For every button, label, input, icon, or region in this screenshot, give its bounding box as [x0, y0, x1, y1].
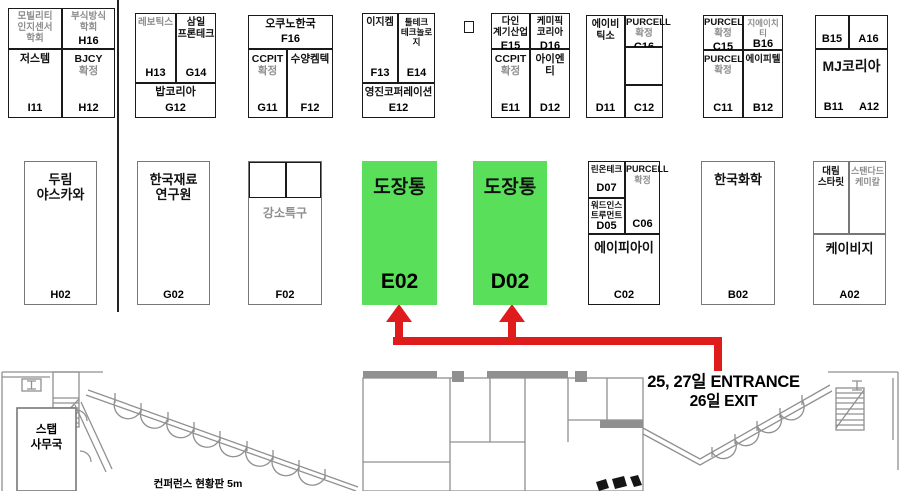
- booth-label: 케미픽: [531, 16, 569, 27]
- booth-kbg: 케이비지A02: [813, 234, 886, 305]
- booth-b02: 한국화학B02: [701, 161, 775, 305]
- booth-label: CCPIT: [249, 53, 286, 65]
- booth-g14: 삼일프론테크G14: [176, 13, 216, 83]
- booth-e12: 영진코퍼레이션E12: [362, 83, 435, 118]
- booth-code: C11: [713, 102, 733, 117]
- booth-code: D12: [540, 102, 560, 117]
- booth-label: 한국재료: [138, 172, 209, 187]
- booth-code: B15: [822, 33, 842, 48]
- booth-empty-mid: [625, 47, 663, 85]
- booth-label: 삼일: [177, 17, 215, 29]
- booth-label: 학회: [9, 33, 61, 44]
- booth-d11: 에이비틱소D11: [586, 15, 625, 118]
- route-arrow-entrance-stem: [714, 337, 722, 371]
- booth-code: A16: [858, 33, 878, 48]
- booth-code: C12: [634, 102, 654, 117]
- booth-standard-chemical: 스탠다드케미칼: [849, 161, 886, 234]
- booth-label: 코리아: [531, 27, 569, 38]
- booth-label: 저스템: [9, 53, 61, 66]
- booth-label: 확정: [704, 65, 742, 76]
- booth-h16: 부식방식학회H16: [62, 8, 115, 49]
- booth-c11: PURCELL확정C11: [703, 50, 743, 118]
- booth-label: 아이엔티: [531, 53, 569, 78]
- booth-h13: 레보틱스H13: [135, 13, 176, 83]
- booth-label: 다인: [492, 16, 529, 27]
- booth-label: 에이피텔: [744, 54, 782, 65]
- booth-label: PURCELL: [626, 17, 662, 28]
- booth-label: 연구원: [138, 187, 209, 202]
- booth-b15: B15: [815, 15, 849, 49]
- booth-label: 케미칼: [850, 177, 885, 188]
- booth-label: 스탠다드: [850, 166, 885, 177]
- booth-label: 강소특구: [249, 206, 321, 220]
- booth-e02-highlight: 도장통E02: [362, 161, 437, 305]
- booth-code: C06: [632, 218, 652, 233]
- booth-d16: 케미픽코리아D16: [530, 13, 570, 49]
- booth-code: E12: [389, 102, 409, 117]
- staff-office-line: 사무국: [17, 438, 76, 453]
- booth-label: 확정: [626, 28, 662, 39]
- booth-f02-subbox-2: [286, 162, 321, 198]
- booth-code: D11: [596, 102, 616, 117]
- booth-f13: 이지켐F13: [362, 13, 398, 83]
- booth-f12: 수양켐텍F12: [287, 49, 333, 118]
- booth-code: B12: [753, 102, 773, 117]
- booth-label: PURCELL: [704, 54, 742, 65]
- booth-label: 지에이치티: [744, 18, 782, 38]
- booth-mobility-sensor-society: 모빌리티인지센서학회: [8, 8, 62, 49]
- route-arrow-e02-head-icon: [386, 304, 412, 322]
- booth-label: 부식방식: [63, 11, 114, 22]
- booth-code: G12: [165, 102, 186, 117]
- booth-label: 도장통: [362, 177, 437, 199]
- booth-label: 확정: [492, 65, 529, 77]
- booth-label: 트루먼트: [589, 210, 624, 220]
- booth-api: 에이피아이C02: [588, 234, 660, 305]
- route-arrow-horizontal: [393, 337, 722, 345]
- booth-label: 에이피아이: [589, 240, 659, 255]
- booth-mj-korea: MJ코리아B11A12: [815, 49, 888, 118]
- booth-code: D05: [596, 220, 616, 235]
- booth-label: CCPIT: [492, 53, 529, 65]
- booth-label: 대림: [814, 166, 848, 177]
- booth-d07: 린온테크D07: [588, 161, 625, 198]
- booth-code: A02: [839, 289, 859, 304]
- booth-g02: 한국재료연구원G02: [137, 161, 210, 305]
- floorplan: 25, 27일 ENTRANCE 26일 EXIT 스탭 사무국 컨퍼런스 현황…: [0, 0, 900, 491]
- route-arrow-d02-shaft: [508, 319, 516, 341]
- booth-code: G02: [163, 289, 184, 304]
- booth-b16: 지에이치티B16: [743, 15, 783, 50]
- booth-code: B11: [824, 101, 844, 113]
- booth-f02-subbox-1: [249, 162, 286, 198]
- booth-c06: PURCELL확정C06: [625, 161, 660, 234]
- booth-code: F12: [301, 102, 320, 117]
- route-arrow-d02-head-icon: [499, 304, 525, 322]
- booth-g11: CCPIT확정G11: [248, 49, 287, 118]
- booth-g12: 밥코리아G12: [135, 83, 216, 118]
- booth-e11: CCPIT확정E11: [491, 49, 530, 118]
- entrance-exit-label: 25, 27일 ENTRANCE 26일 EXIT: [625, 373, 822, 411]
- booth-h02: 두림야스카와H02: [24, 161, 97, 305]
- booth-code: F13: [371, 67, 390, 82]
- booth-code: E14: [407, 67, 427, 82]
- booth-label: 틱소: [587, 31, 624, 43]
- booth-label: 프론테크: [177, 29, 215, 41]
- booth-code: F02: [276, 289, 295, 304]
- booth-label: 수양켐텍: [288, 53, 332, 65]
- booth-i11: 저스템I11: [8, 49, 62, 118]
- booth-label: 도장통: [473, 177, 547, 199]
- booth-code: H12: [78, 102, 98, 117]
- staff-office-line: 스탭: [17, 423, 76, 438]
- booth-label: 확정: [63, 65, 114, 77]
- exit-line: 26일 EXIT: [625, 393, 822, 412]
- booth-b12: 에이피텔B12: [743, 50, 783, 118]
- booth-h12: BJCY확정H12: [62, 49, 115, 118]
- booth-label: 모빌리티: [9, 11, 61, 22]
- booth-code: H02: [50, 289, 70, 304]
- booth-a16: A16: [849, 15, 888, 49]
- cutoff-text-fragment: [596, 475, 642, 491]
- booth-label: PURCELL: [704, 17, 742, 28]
- booth-label: 인지센서: [9, 22, 61, 33]
- conference-board-label: 컨퍼런스 현황판 5m: [136, 476, 260, 491]
- booth-code: H13: [145, 67, 165, 82]
- booth-code: G14: [186, 67, 207, 82]
- booth-code: E02: [381, 270, 418, 305]
- booth-code: G11: [257, 102, 277, 117]
- booth-code: C02: [614, 289, 634, 304]
- booth-label: 린온테크: [589, 164, 624, 174]
- booth-code: I11: [28, 102, 43, 117]
- booth-e15: 다인계기산업E15: [491, 13, 530, 49]
- booth-label: 계기산업: [492, 27, 529, 38]
- booth-code: D02: [491, 270, 530, 305]
- booth-code: A12: [859, 101, 879, 113]
- booth-label: 야스카와: [25, 187, 96, 202]
- booth-d05: 워드인스트루먼트D05: [588, 198, 625, 234]
- booth-label: 워드인스: [589, 200, 624, 210]
- booth-d02-highlight: 도장통D02: [473, 161, 547, 305]
- booth-d12: 아이엔티D12: [530, 49, 570, 118]
- booth-label: 스타릿: [814, 177, 848, 188]
- booth-code: H16: [78, 35, 98, 47]
- booth-label: 학회: [63, 22, 114, 33]
- booth-label: 영진코퍼레이션: [363, 86, 434, 98]
- booth-label: 에이비: [587, 19, 624, 31]
- booth-daelim-starlet: 대림스타릿: [813, 161, 849, 234]
- staff-office-label: 스탭 사무국: [17, 423, 76, 453]
- booth-code: E11: [501, 102, 520, 117]
- aisle-divider-line: [117, 0, 119, 312]
- booth-c12: C12: [625, 85, 663, 118]
- booth-label: 레보틱스: [136, 17, 175, 28]
- booth-label: 확정: [704, 28, 742, 39]
- booth-label: 오쿠노한국: [249, 18, 332, 31]
- booth-label: 케이비지: [814, 241, 885, 256]
- booth-label: 테크놀로지: [399, 27, 434, 47]
- booth-e14: 툴테크테크놀로지E14: [398, 13, 435, 83]
- booth-label: 두림: [25, 172, 96, 187]
- route-arrow-e02-shaft: [395, 319, 403, 341]
- booth-code: F16: [281, 33, 300, 48]
- small-booth-marker: [464, 21, 474, 33]
- booth-label: 확정: [249, 65, 286, 77]
- booth-c16: PURCELL확정C16: [625, 15, 663, 47]
- column-mark-icon: [27, 381, 36, 389]
- booth-f16: 오쿠노한국F16: [248, 15, 333, 49]
- booth-label: BJCY: [63, 53, 114, 65]
- booth-label: 툴테크: [399, 17, 434, 27]
- booth-label: 한국화학: [702, 172, 774, 187]
- booth-code: B02: [728, 289, 748, 304]
- booth-code: D07: [596, 182, 616, 197]
- entrance-line: 25, 27일 ENTRANCE: [625, 373, 822, 393]
- booth-label: MJ코리아: [816, 58, 887, 75]
- booth-label: 확정: [626, 175, 659, 186]
- booth-label: 밥코리아: [136, 86, 215, 99]
- booth-label: PURCELL: [626, 164, 659, 175]
- booth-label: 이지켐: [363, 17, 397, 29]
- booth-c15: PURCELL확정C15: [703, 15, 743, 50]
